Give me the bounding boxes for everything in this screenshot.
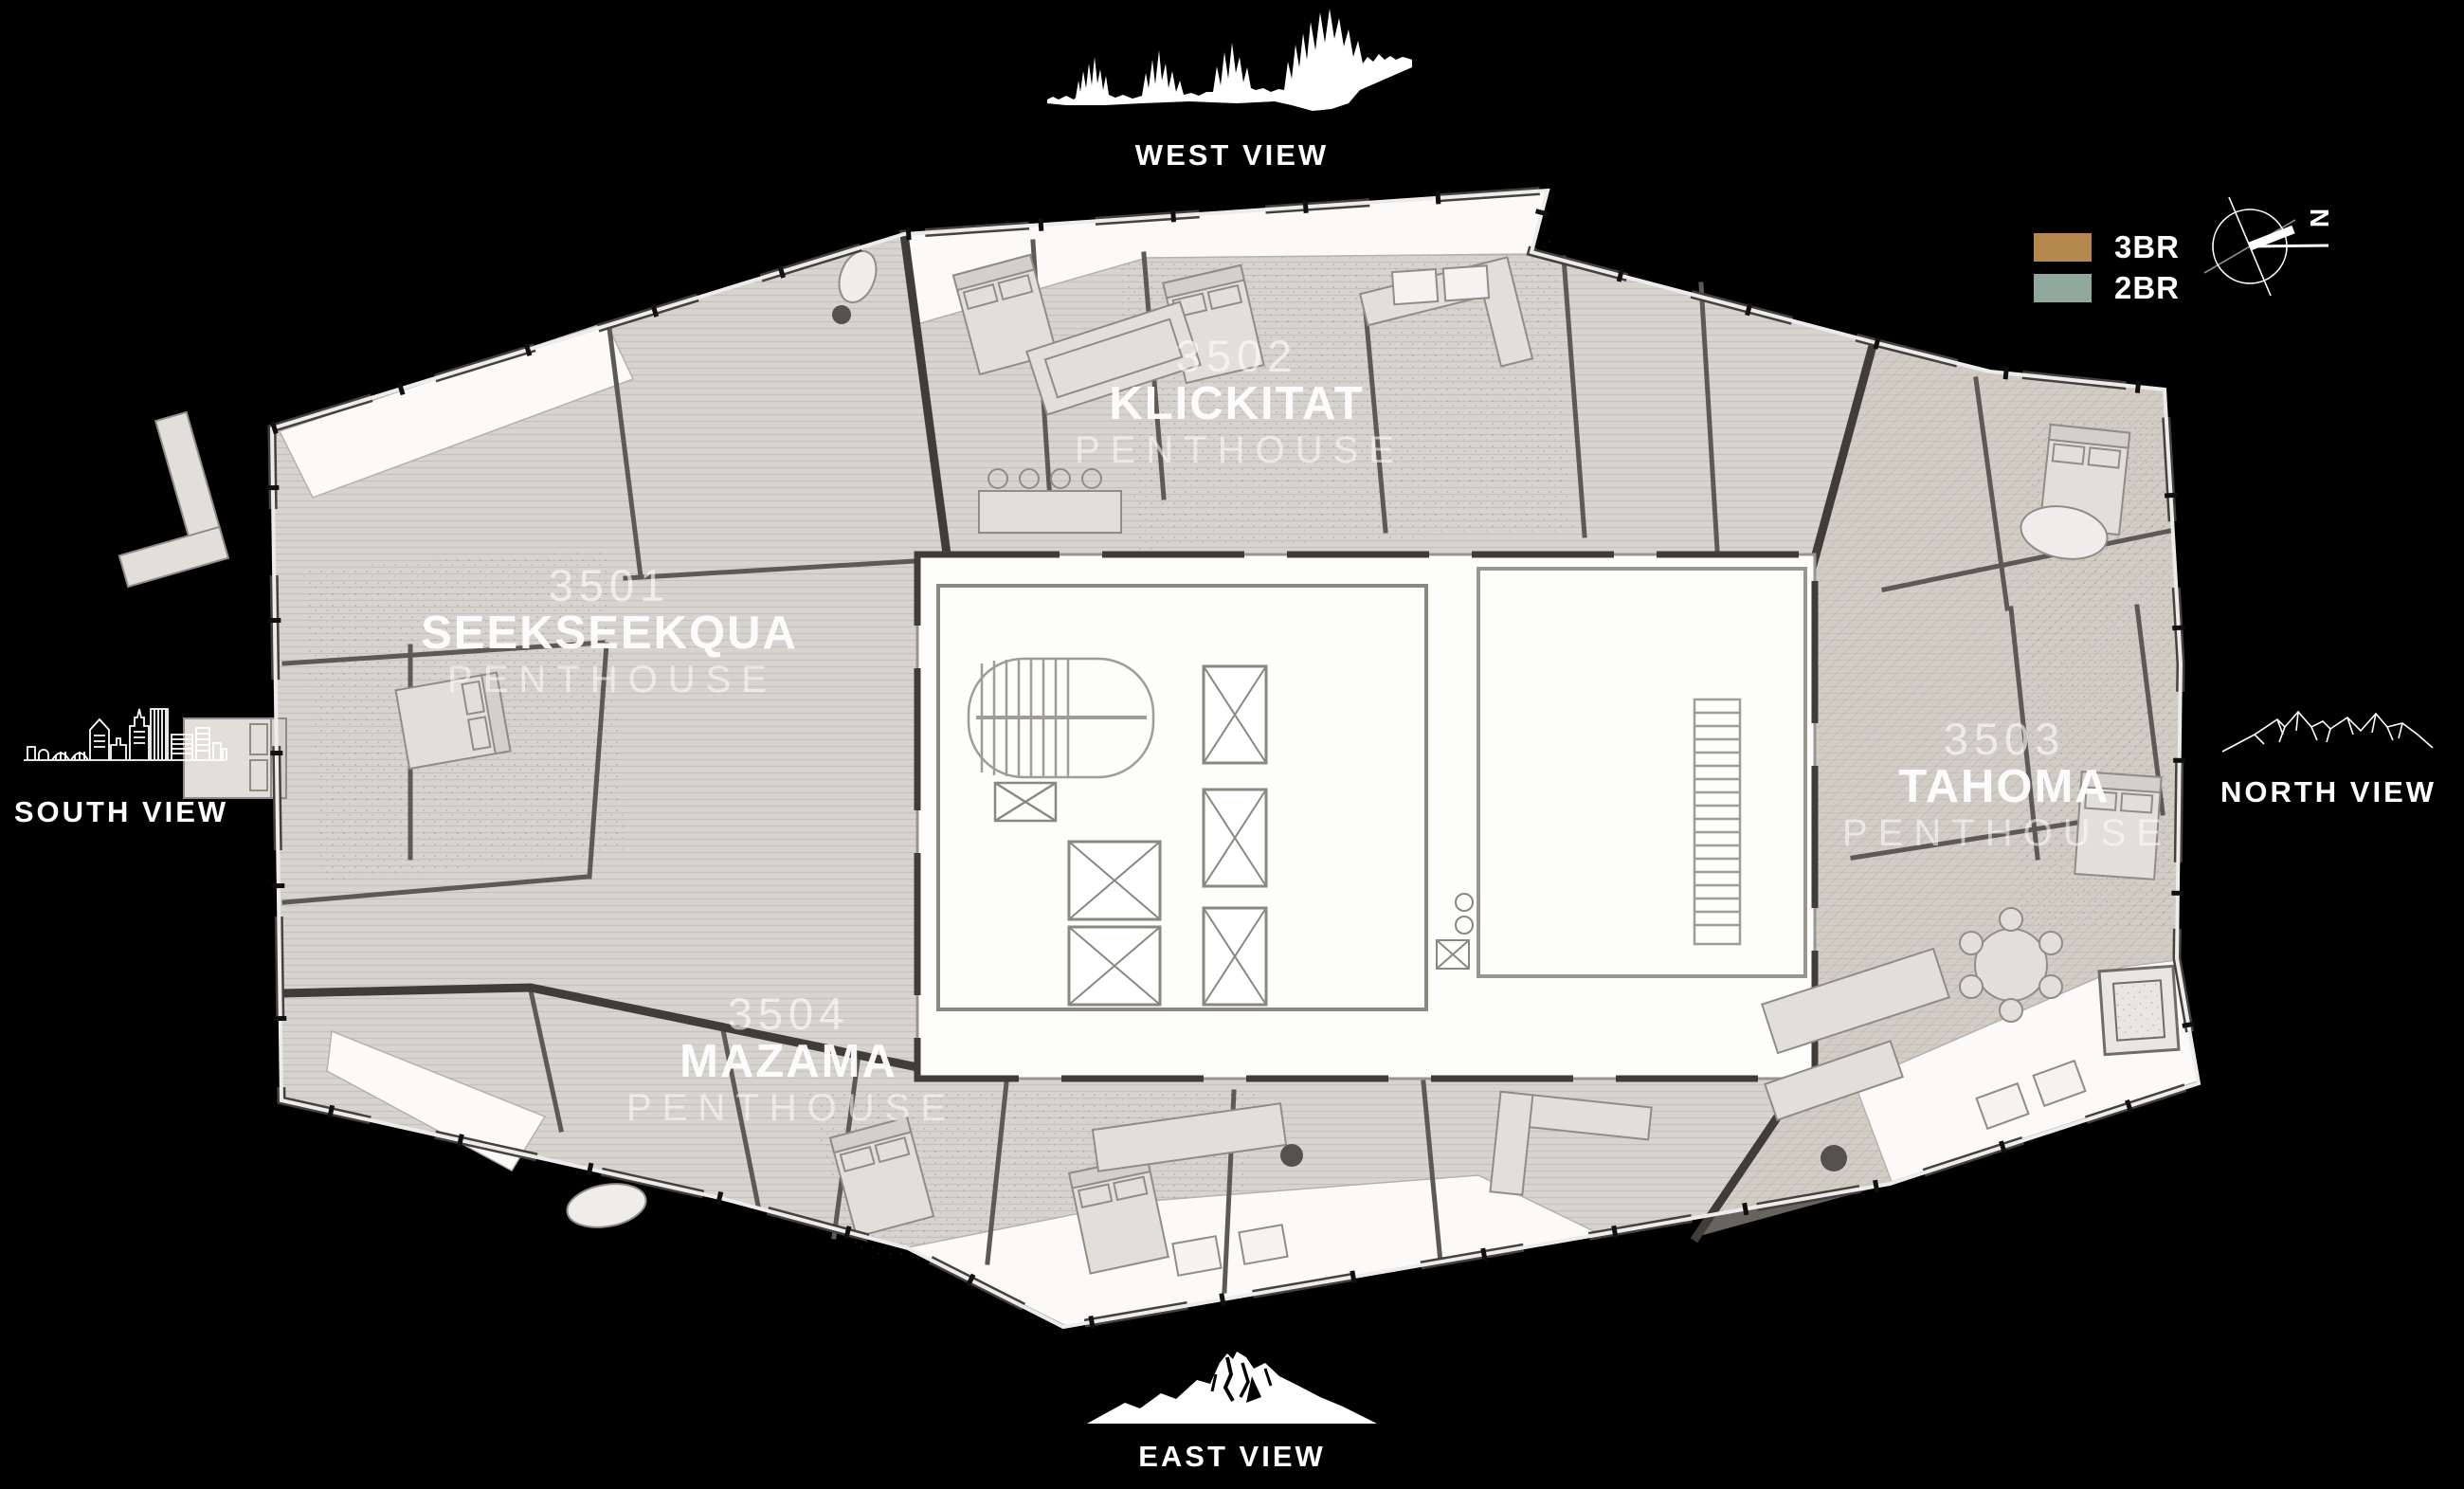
unit-number: 3504 [621,991,956,1037]
unit-type: PENTHOUSE [1837,814,2172,853]
treeline-icon [1047,9,1412,111]
legend-label-3br: 3BR [2114,229,2180,265]
unit-label-3504: 3504 MAZAMA PENTHOUSE [621,991,956,1128]
mountain-silhouette-icon [1087,1352,1377,1424]
unit-label-3501: 3501 SEEKSEEKQUA PENTHOUSE [421,563,798,699]
legend: 3BR 2BR [2034,233,2180,315]
hot-tub [2099,966,2179,1054]
legend-row-3br: 3BR [2034,233,2180,262]
unit-label-3502: 3502 KLICKITAT PENTHOUSE [1069,334,1404,470]
legend-label-2br: 2BR [2114,270,2180,306]
unit-label-3503: 3503 TAHOMA PENTHOUSE [1837,717,2172,853]
south-view-label: SOUTH VIEW [14,795,228,829]
legend-row-2br: 2BR [2034,274,2180,302]
mountain-ridge-icon [2222,712,2433,752]
unit-number: 3501 [421,563,798,608]
city-skyline-icon [24,709,226,760]
penthouse-floorplan-page: N WEST VIEW SOUTH VIEW NORTH VIEW EAST V… [0,0,2464,1489]
unit-name: MAZAMA [621,1039,956,1086]
west-view-label: WEST VIEW [1135,138,1329,173]
compass-north-label: N [2305,209,2334,227]
legend-swatch-2br [2034,274,2092,302]
north-view-label: NORTH VIEW [2220,775,2437,809]
unit-name: KLICKITAT [1069,381,1404,428]
unit-type: PENTHOUSE [621,1089,956,1128]
compass-icon: N [2204,197,2334,296]
unit-name: SEEKSEEKQUA [421,610,798,658]
east-view-label: EAST VIEW [1138,1440,1326,1474]
legend-swatch-3br [2034,233,2092,262]
building-core [917,554,1815,1079]
unit-type: PENTHOUSE [421,661,798,699]
unit-type: PENTHOUSE [1069,431,1404,470]
unit-number: 3503 [1837,717,2172,762]
unit-number: 3502 [1069,334,1404,379]
unit-name: TAHOMA [1837,764,2172,811]
